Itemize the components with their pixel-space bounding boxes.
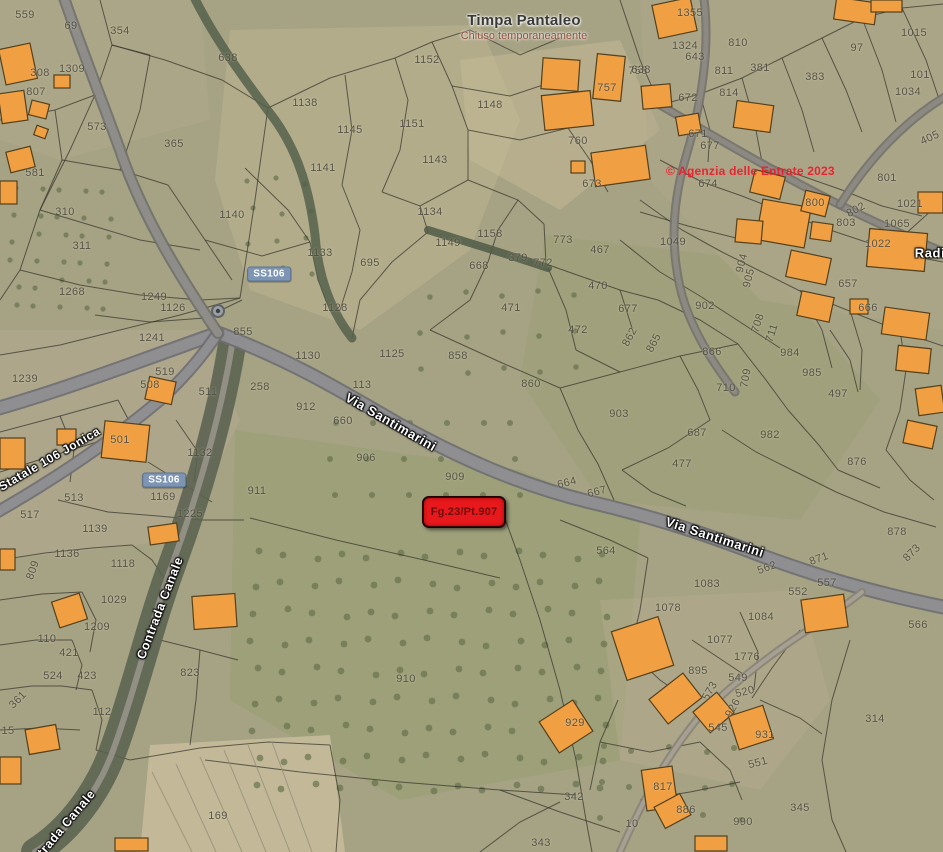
place-status: Chiuso temporaneamente [461, 30, 588, 42]
copyright-text: © Agenzia delle Entrate 2023 [666, 164, 835, 178]
map-canvas[interactable]: 5596935413093088075736383655813103111268… [0, 0, 943, 852]
poi-icon [212, 305, 224, 317]
parcel-highlight-text: Fg.23/Pt.907 [431, 506, 498, 518]
place-label: Timpa Pantaleo Chiuso temporaneamente [461, 12, 588, 42]
place-title: Timpa Pantaleo [461, 12, 588, 29]
map-graphics [0, 0, 943, 852]
parcel-highlight-label[interactable]: Fg.23/Pt.907 [422, 496, 506, 528]
